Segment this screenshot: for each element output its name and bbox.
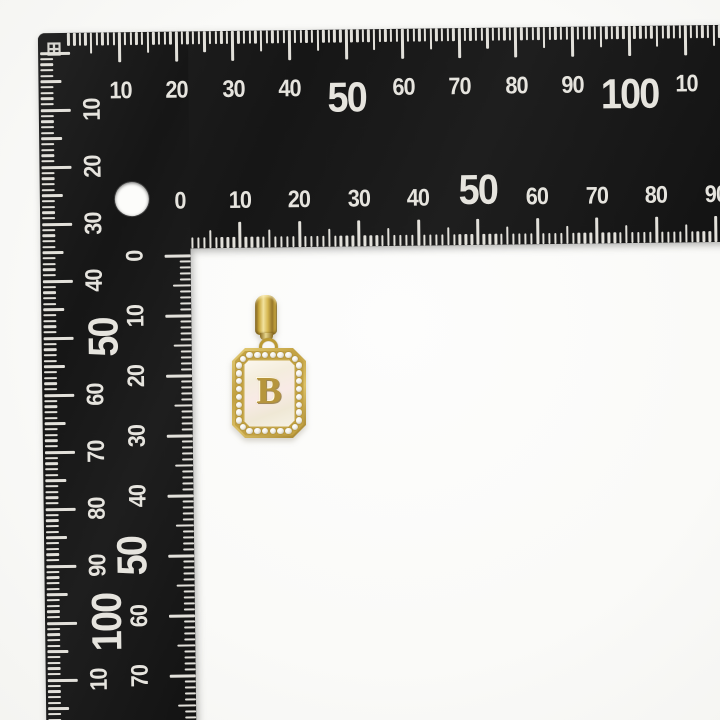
ruler-scale-label: 40 [279,77,302,101]
ruler-tick [277,30,280,43]
ruler-tick [530,233,533,244]
ruler-tick [328,229,331,247]
ruler-tick [185,692,196,695]
ruler-tick [181,392,192,395]
ruler-tick [662,26,665,39]
ruler-tick [446,28,449,41]
ruler-tick [362,29,365,42]
ruler-tick [184,578,195,581]
ruler-tick [633,26,636,39]
ruler-tick [40,80,61,83]
ruler-scale-label: 20 [288,188,311,212]
ruler-tick [96,33,99,46]
ruler-tick [183,536,194,539]
ruler-tick [185,680,196,683]
ruler-tick [182,440,193,443]
ruler-tick [46,496,59,499]
ruler-tick [209,230,212,248]
ruler-tick [181,332,192,335]
ruler-tick [45,491,58,494]
ruler-tick [494,234,497,245]
ruler-tick [47,650,68,653]
ruler-tick [181,380,192,383]
ruler-tick [180,272,191,275]
ruler-tick [298,221,301,247]
cz-stone [292,424,299,431]
letter-b-pendant: B [230,293,320,443]
ruler-tick [47,588,60,591]
ruler-tick [182,446,193,449]
ruler-tick [423,235,426,246]
ruler-tick [364,235,367,246]
ruler-tick [178,704,196,707]
ruler-tick [40,51,70,54]
ruler-tick [47,645,60,648]
ruler-tick [221,237,224,248]
ruler-tick [520,27,523,40]
ruler-tick [185,668,196,671]
ruler-scale-label: 60 [392,76,415,100]
pendant-letter: B [243,369,296,413]
cz-stone [236,378,243,385]
ruler-tick [611,26,614,39]
ruler-tick [560,233,563,244]
cz-stone [236,417,243,424]
ruler-tick [47,621,77,624]
ruler-tick [696,25,699,38]
ruler-tick [41,137,62,140]
ruler-scale-label: 70 [85,440,109,463]
ruler-scale-label: 90 [562,74,585,98]
ruler-tick [712,25,715,46]
ruler-tick [43,263,56,266]
ruler-tick [174,404,192,407]
ruler-scale-label: 90 [704,183,720,207]
ruler-tick [418,29,421,42]
ruler-tick [185,710,196,713]
ruler-tick [340,236,343,247]
ruler-tick [184,590,195,593]
ruler-tick [185,698,196,701]
ruler-tick [463,28,466,41]
ruler-tick [622,26,625,39]
ruler-tick [44,400,57,403]
ruler-tick [170,674,196,677]
ruler-tick [554,233,557,244]
ruler-tick [180,308,191,311]
ruler-tick [697,231,700,242]
ruler-tick [135,32,138,45]
ruler-scale-label: 50 [458,169,497,211]
ruler-tick [43,251,64,254]
ruler-tick [649,232,652,243]
ruler-tick [370,235,373,246]
ruler-tick [616,26,619,39]
ruler-scale-label: 0 [174,189,185,213]
ruler-tick [322,236,325,247]
ruler-tick [84,33,87,46]
ruler-tick [183,530,194,533]
ruler-scale-label: 10 [81,98,105,121]
cz-stone [270,428,277,435]
ruler-tick [180,290,191,293]
ruler-tick [181,410,192,413]
ruler-tick [458,28,461,58]
ruler-tick [177,644,195,647]
cz-stone [296,394,303,401]
ruler-tick [45,457,58,460]
cz-stone [236,362,243,369]
ruler-tick [169,614,195,617]
ruler-tick [595,217,598,243]
ruler-tick [44,348,57,351]
ruler-tick [113,32,116,45]
ruler-scale-label: 90 [86,554,110,577]
ruler-tick [184,620,195,623]
ruler-tick [401,29,404,59]
ruler-scale-label: 10 [109,79,132,103]
ruler-tick [42,234,55,237]
cz-stone [296,378,303,385]
ruler-tick [465,234,468,245]
ruler-scale-label: 70 [448,75,471,99]
ruler-tick [168,554,194,557]
ruler-tick [184,608,195,611]
ruler-tick [180,260,191,263]
ruler-tick [709,231,712,242]
ruler-tick [167,434,193,437]
ruler-tick [471,234,474,245]
ruler-tick [44,377,57,380]
ruler-tick [175,464,193,467]
ruler-tick [184,596,195,599]
ruler-scale-label: 70 [585,184,608,208]
ruler-tick [43,303,56,306]
ruler-tick [42,194,63,197]
ruler-tick [184,602,195,605]
ruler-tick [47,593,68,596]
ruler-tick [645,26,648,39]
ruler-tick [367,29,370,42]
ruler-tick [101,32,104,45]
ruler-tick [182,470,193,473]
ruler-tick [599,26,602,47]
ruler-tick [45,474,58,477]
ruler-tick [679,231,682,242]
ruler-tick [46,576,59,579]
ruler-tick [447,227,450,245]
ruler-tick [46,519,59,522]
ruler-tick [578,233,581,244]
ruler-tick [245,237,248,248]
ruler-tick [41,97,54,100]
ruler-tick [476,219,479,245]
ruler-tick [594,26,597,39]
ruler-tick [41,132,54,135]
ruler-tick [45,439,58,442]
ruler-scale-label: 60 [84,383,108,406]
ruler-tick [352,235,355,246]
ruler-tick [181,386,192,389]
cz-stone [254,352,261,359]
ruler-tick [684,25,687,55]
mother-of-pearl-center: B [243,359,296,428]
ruler-tick [48,685,61,688]
ruler-tick [584,233,587,244]
ruler-tick [588,27,591,40]
ruler-scale-label: 10 [88,668,112,691]
ruler-tick [165,314,191,317]
ruler-scale-label: 80 [86,497,110,520]
ruler-tick [43,325,56,328]
ruler-tick [46,548,59,551]
ruler-tick [45,417,58,420]
ruler-scale-label: 50 [327,76,366,118]
ruler-tick [183,512,194,515]
ruler-tick [227,237,230,248]
ruler-tick [344,29,347,59]
ruler-tick [182,488,193,491]
ruler-tick [334,236,337,247]
ruler-tick [411,235,414,246]
ruler-tick [181,362,192,365]
ruler-tick [176,524,194,527]
ruler-scale-label: 10 [675,72,698,96]
ruler-tick [44,382,57,385]
ruler-tick [183,548,194,551]
ruler-tick [531,27,534,40]
ruler-tick [220,31,223,44]
ruler-tick [182,416,193,419]
ruler-tick [181,338,192,341]
ruler-tick [180,296,191,299]
ruler-tick [44,343,57,346]
ruler-tick [183,506,194,509]
ruler-tick [350,29,353,42]
ruler-tick [42,229,55,232]
ruler-tick [643,232,646,243]
ruler-tick [182,428,193,431]
cz-stone [277,428,284,435]
cz-stone [236,409,243,416]
ruler-tick [45,450,75,453]
ruler-tick [356,29,359,42]
ruler-tick [173,284,191,287]
ruler-tick [582,27,585,40]
ruler-tick [169,32,172,45]
ruler-tick [40,63,53,66]
ruler-tick [613,232,616,243]
ruler-tick [566,226,569,244]
cz-stone [262,352,269,359]
ruler-tick [43,320,56,323]
ruler-tick [182,482,193,485]
ruler-tick [294,30,297,43]
ruler-tick [191,237,194,248]
ruler-tick [47,628,60,631]
ruler-hanging-hole [115,182,149,216]
ruler-tick [357,220,360,246]
ruler-tick [183,542,194,545]
ruler-tick [183,518,194,521]
ruler-tick [305,30,308,43]
ruler-tick [45,422,66,425]
ruler-tick [248,31,251,44]
ruler-tick [429,234,432,245]
ruler-scale-label: 80 [645,184,668,208]
ruler-tick [537,27,540,40]
ruler-tick [256,237,259,248]
ruler-tick [480,28,483,41]
ruler-tick [73,33,76,46]
ruler-tick [548,233,551,244]
pendant-bail [255,295,277,335]
ruler-tick [167,494,193,497]
cz-stone [236,386,243,393]
ruler-tick [41,115,54,118]
ruler-tick [237,31,240,44]
ruler-tick [180,302,191,305]
ruler-tick [322,30,325,43]
ruler-tick [288,30,291,60]
cz-stone [236,402,243,409]
product-photo-scene: ⊞ 10203040506070809010010 01020304050607… [0,0,720,720]
cz-stone [296,402,303,409]
ruler-tick [486,28,489,49]
ruler-tick [184,626,195,629]
ruler-scale-label: 30 [222,78,245,102]
ruler-tick [42,211,55,214]
ruler-tick [47,633,60,636]
cz-stone [236,370,243,377]
ruler-tick [489,234,492,245]
ruler-tick [251,237,254,248]
ruler-tick [265,30,268,43]
ruler-brand-mark-icon: ⊞ [46,40,62,59]
ruler-tick [46,507,76,510]
ruler-scale-label: 40 [126,485,150,508]
ruler-tick [183,572,194,575]
ruler-tick [608,232,611,243]
ruler-tick [118,32,121,62]
ruler-tick [238,222,241,248]
ruler-tick [45,462,58,465]
ruler-tick [453,234,456,245]
ruler-tick [203,237,206,248]
ruler-tick [602,232,605,243]
ruler-tick [48,690,61,693]
ruler-tick [701,25,704,38]
ruler-tick [304,236,307,247]
cz-stone [270,352,277,359]
ruler-tick [185,662,196,665]
ruler-tick [42,222,72,225]
ruler-tick [441,234,444,245]
ruler-tick [46,514,59,517]
ruler-tick [182,476,193,479]
pendant-tag: B [232,348,306,438]
ruler-tick [271,30,274,43]
ruler-tick [316,30,319,51]
ruler-tick [299,30,302,43]
ruler-tick [147,32,150,53]
ruler-tick [679,25,682,38]
ruler-scale-label: 30 [347,187,370,211]
ruler-tick [254,31,257,44]
ruler-tick [41,165,71,168]
ruler-tick [42,189,55,192]
ruler-tick [184,632,195,635]
ruler-tick [639,26,642,39]
ruler-tick [183,500,194,503]
ruler-scale-label: 50 [111,537,153,576]
ruler-tick [186,31,189,44]
ruler-tick [44,336,74,339]
ruler-tick [48,678,78,681]
ruler-scale-label: 80 [505,74,528,98]
ruler-tick [572,233,575,244]
ruler-tick [536,218,539,244]
cz-stone [277,352,284,359]
ruler-tick [214,31,217,44]
cz-stone [246,352,253,359]
ruler-tick [40,58,53,61]
ruler-tick [605,26,608,39]
cz-stone [254,428,261,435]
ruler-tick [673,231,676,242]
ruler-tick [548,27,551,40]
ruler-tick [180,326,191,329]
ruler-tick [333,30,336,43]
ruler-tick [685,224,688,242]
ruler-tick [714,216,717,242]
cz-stone [246,428,253,435]
ruler-scale-label: 60 [128,605,152,628]
ruler-tick [282,30,285,43]
ruler-tick [46,571,59,574]
ruler-tick [174,344,192,347]
ruler-scale-label: 40 [83,269,107,292]
ruler-tick [40,75,53,78]
ruler-tick [42,172,55,175]
cz-stone [296,362,303,369]
ruler-tick [182,458,193,461]
ruler-tick [41,154,54,157]
ruler-tick [667,232,670,243]
ruler-scale-label: 40 [407,187,430,211]
ruler-scale-label: 10 [228,189,251,213]
ruler-tick [197,31,200,44]
cz-stone [240,356,247,363]
ruler-tick [384,29,387,42]
ruler-tick [339,30,342,43]
ruler-tick [405,235,408,246]
ruler-tick [48,662,61,665]
ruler-scale-label: 20 [125,365,149,388]
ruler-tick [67,33,70,46]
ruler-tick [181,398,192,401]
ruler-tick [459,234,462,245]
ruler-tick [497,28,500,41]
ruler-tick [185,716,196,719]
ruler-tick [435,234,438,245]
ruler-tick [655,217,658,243]
ruler-tick [316,236,319,247]
ruler-tick [185,686,196,689]
ruler-scale-label: 10 [124,305,148,328]
ruler-scale-label: 50 [82,318,124,357]
ruler-tick [571,27,574,57]
